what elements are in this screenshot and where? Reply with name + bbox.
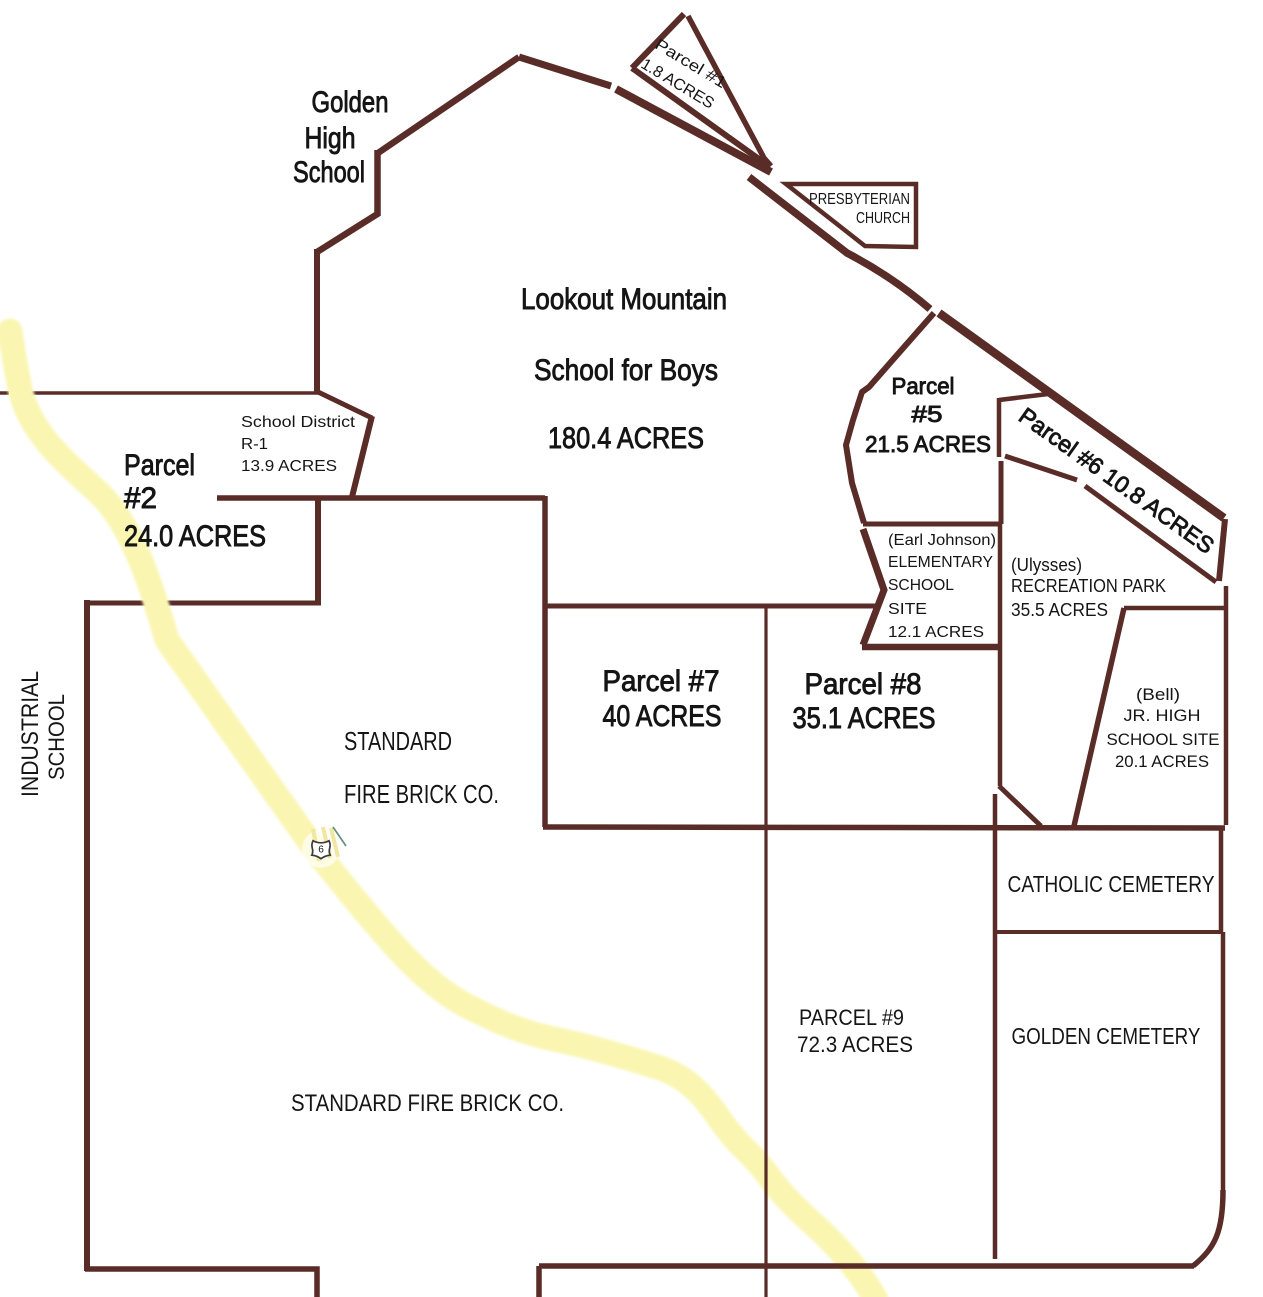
svg-text:(Bell): (Bell) (1136, 685, 1180, 704)
svg-text:RECREATION PARK: RECREATION PARK (1011, 576, 1166, 596)
svg-text:13.9 ACRES: 13.9 ACRES (241, 458, 337, 475)
svg-text:21.5 ACRES: 21.5 ACRES (865, 431, 991, 457)
svg-text:JR. HIGH: JR. HIGH (1124, 706, 1201, 725)
svg-text:35.5 ACRES: 35.5 ACRES (1011, 600, 1108, 620)
svg-text:CATHOLIC CEMETERY: CATHOLIC CEMETERY (1008, 871, 1215, 897)
svg-text:Parcel: Parcel (124, 449, 195, 482)
svg-text:High: High (305, 122, 356, 155)
svg-text:PRESBYTERIAN: PRESBYTERIAN (809, 191, 910, 208)
svg-text:Golden: Golden (312, 86, 389, 119)
svg-text:Parcel #7: Parcel #7 (603, 665, 720, 698)
svg-text:SCHOOL: SCHOOL (44, 694, 69, 780)
svg-text:School: School (293, 156, 365, 189)
svg-text:Parcel: Parcel (892, 373, 955, 399)
svg-text:Parcel #8: Parcel #8 (805, 668, 922, 701)
svg-text:(Ulysses): (Ulysses) (1011, 555, 1082, 575)
svg-text:School for Boys: School for Boys (534, 354, 718, 387)
svg-text:GOLDEN CEMETERY: GOLDEN CEMETERY (1012, 1023, 1201, 1049)
svg-text:180.4 ACRES: 180.4 ACRES (548, 422, 704, 455)
svg-text:20.1 ACRES: 20.1 ACRES (1115, 752, 1209, 771)
svg-text:SITE: SITE (888, 601, 927, 618)
svg-text:CHURCH: CHURCH (856, 210, 910, 227)
svg-text:FIRE BRICK CO.: FIRE BRICK CO. (344, 779, 499, 809)
svg-text:PARCEL #9: PARCEL #9 (799, 1005, 904, 1030)
svg-text:#2: #2 (124, 482, 157, 515)
svg-text:(Earl Johnson): (Earl Johnson) (888, 532, 996, 549)
svg-text:12.1 ACRES: 12.1 ACRES (888, 624, 984, 641)
svg-text:72.3 ACRES: 72.3 ACRES (797, 1032, 913, 1057)
svg-text:SCHOOL SITE: SCHOOL SITE (1107, 730, 1220, 749)
svg-text:40 ACRES: 40 ACRES (603, 700, 722, 733)
svg-text:#5: #5 (912, 401, 943, 427)
svg-text:INDUSTRIAL: INDUSTRIAL (17, 671, 44, 797)
svg-text:Lookout Mountain: Lookout Mountain (521, 283, 727, 316)
svg-text:24.0 ACRES: 24.0 ACRES (124, 520, 266, 553)
svg-text:ELEMENTARY: ELEMENTARY (888, 554, 993, 571)
svg-text:Parcel #6 10.8 ACRES: Parcel #6 10.8 ACRES (1014, 402, 1219, 558)
svg-text:School District: School District (241, 414, 356, 431)
svg-text:STANDARD FIRE BRICK CO.: STANDARD FIRE BRICK CO. (291, 1090, 564, 1117)
svg-text:6: 6 (318, 845, 324, 856)
svg-text:R-1: R-1 (241, 436, 268, 453)
svg-text:35.1 ACRES: 35.1 ACRES (793, 702, 936, 735)
svg-text:SCHOOL: SCHOOL (888, 577, 954, 594)
svg-text:STANDARD: STANDARD (344, 726, 452, 756)
